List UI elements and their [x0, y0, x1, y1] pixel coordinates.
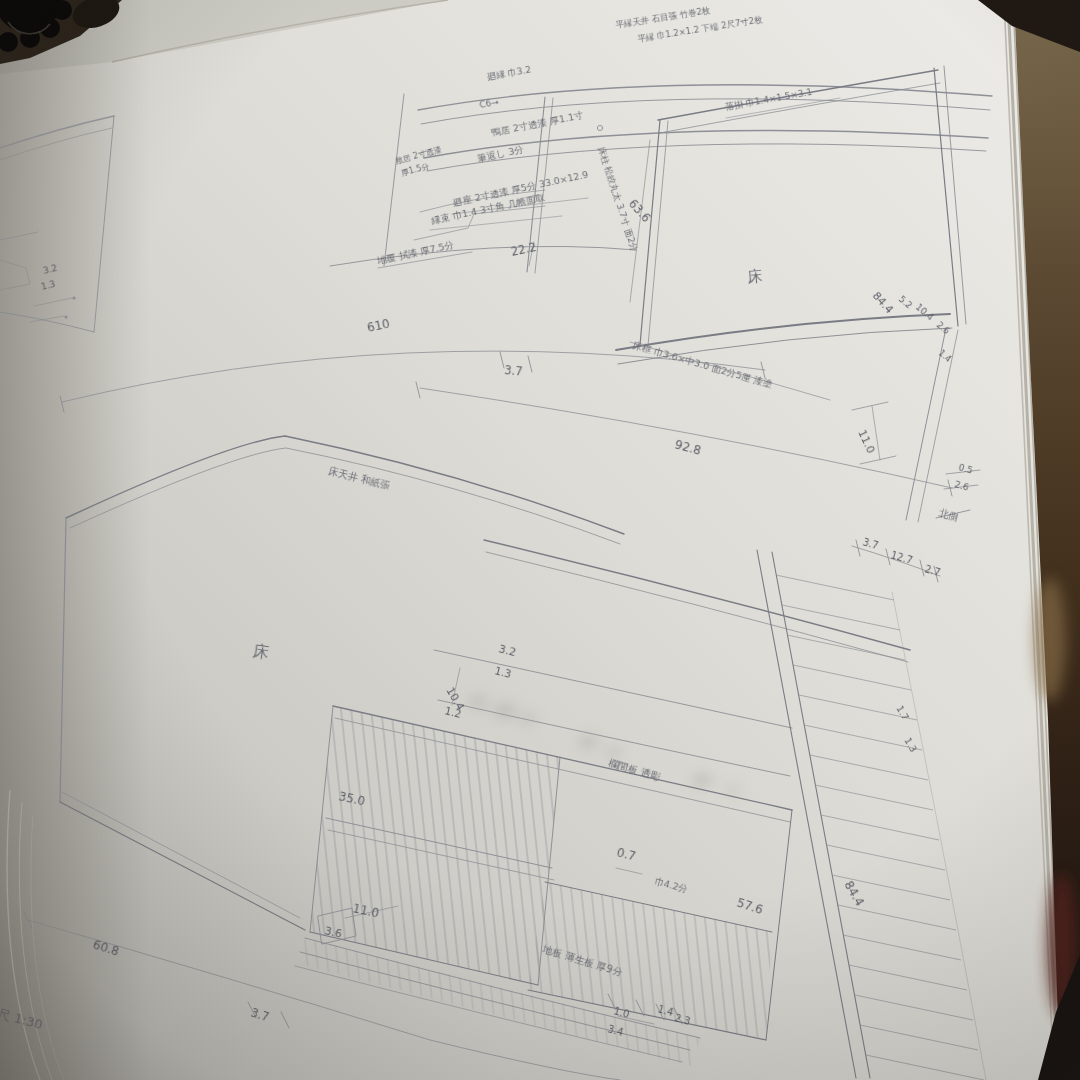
vignette [0, 0, 1080, 1080]
book-photo: 3.2 1.3 [0, 0, 1080, 1080]
photo-canvas: 3.2 1.3 [0, 0, 1080, 1080]
